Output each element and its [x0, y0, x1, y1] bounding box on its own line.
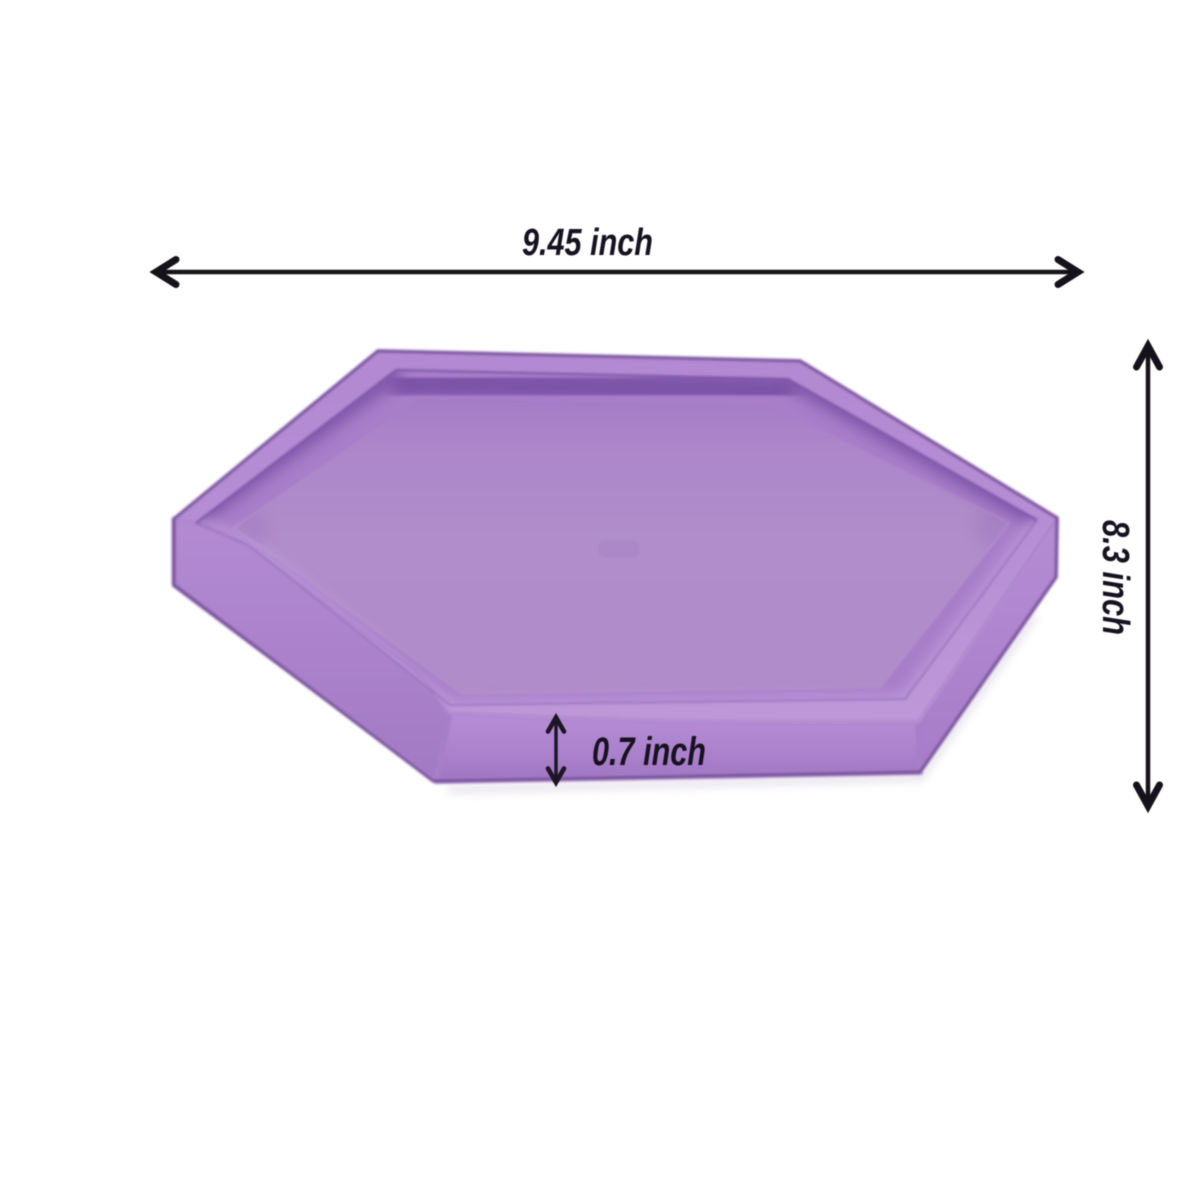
svg-text:9.45 inch: 9.45 inch — [522, 222, 653, 264]
svg-text:8.3 inch: 8.3 inch — [1094, 520, 1136, 635]
svg-text:0.7 inch: 0.7 inch — [592, 730, 706, 774]
